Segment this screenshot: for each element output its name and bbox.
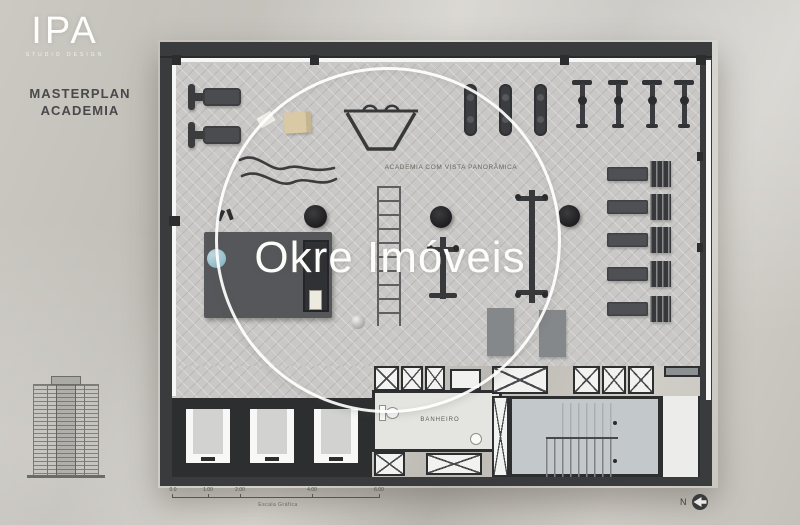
facade-post (560, 55, 569, 65)
shaft-x-icon (492, 396, 509, 477)
spin-bike-icon (571, 80, 593, 128)
glass-facade-right (706, 60, 711, 400)
spin-bike-icon (607, 80, 629, 128)
page-title-line1: MASTERPLAN (0, 86, 160, 103)
floor-mat-icon (539, 310, 566, 357)
wall-bottom (160, 477, 712, 486)
weight-bench-icon (607, 194, 671, 220)
facade-post (696, 55, 706, 65)
page-title: MASTERPLAN ACADEMIA (0, 86, 160, 120)
facade-post (172, 55, 181, 65)
shaft-x-icon (628, 366, 654, 394)
north-indicator: N (680, 493, 720, 513)
scale-tick-label: 0.0 (170, 487, 177, 493)
facade-post (169, 216, 180, 226)
north-label: N (680, 497, 687, 507)
masterplan-page: IPA STUDIO DESIGN MASTERPLAN ACADEMIA (0, 0, 800, 525)
north-arrow-icon (691, 493, 709, 511)
page-title-line2: ACADEMIA (0, 103, 160, 120)
tower-elevation-icon (27, 372, 105, 486)
shaft-x-icon (374, 452, 405, 476)
treadmill-icon (188, 122, 242, 148)
studio-logo: IPA STUDIO DESIGN (0, 12, 130, 58)
elevator-icon (309, 403, 363, 469)
facade-post (310, 55, 319, 65)
punching-bag-icon (558, 205, 580, 227)
elliptical-icon (531, 82, 551, 138)
elevator-door (664, 366, 700, 377)
spin-bike-icon (641, 80, 663, 128)
spin-bike-icon (673, 80, 695, 128)
weight-bench-icon (607, 261, 671, 287)
watermark-text: Okre Imóveis (225, 233, 555, 283)
facade-clip (697, 243, 703, 252)
sink-icon (470, 433, 482, 445)
scale-tick-label: 1.00 (203, 487, 213, 493)
wall-top (160, 42, 712, 58)
treadmill-icon (188, 84, 242, 110)
stairs-icon (546, 437, 618, 477)
shaft-x-icon (426, 453, 482, 475)
scale-tick-label: 4.00 (307, 487, 317, 493)
glass-facade-top (172, 58, 700, 62)
service-corridor (661, 396, 700, 477)
stairs-icon (562, 403, 618, 437)
scale-tick-label: 6.00 (374, 487, 384, 493)
scale-tick-label: 2.00 (235, 487, 245, 493)
scale-bar: 0.0 1.00 2.00 4.00 6.00 Escala Gráfica (168, 487, 388, 513)
shaft-x-icon (602, 366, 626, 394)
weight-bench-icon (607, 161, 671, 187)
weight-bench-icon (607, 227, 671, 253)
scale-caption: Escala Gráfica (258, 502, 298, 508)
shaft-x-icon (573, 366, 600, 394)
logo-subtext: STUDIO DESIGN (0, 52, 130, 58)
glass-facade-left (172, 62, 176, 396)
elevator-icon (181, 403, 235, 469)
weight-bench-icon (607, 296, 671, 322)
bathroom-label: BANHEIRO (405, 417, 475, 423)
elevator-icon (245, 403, 299, 469)
facade-clip (697, 152, 703, 161)
logo-text: IPA (0, 12, 130, 50)
wall-left (160, 58, 172, 486)
stair-room (509, 396, 661, 477)
